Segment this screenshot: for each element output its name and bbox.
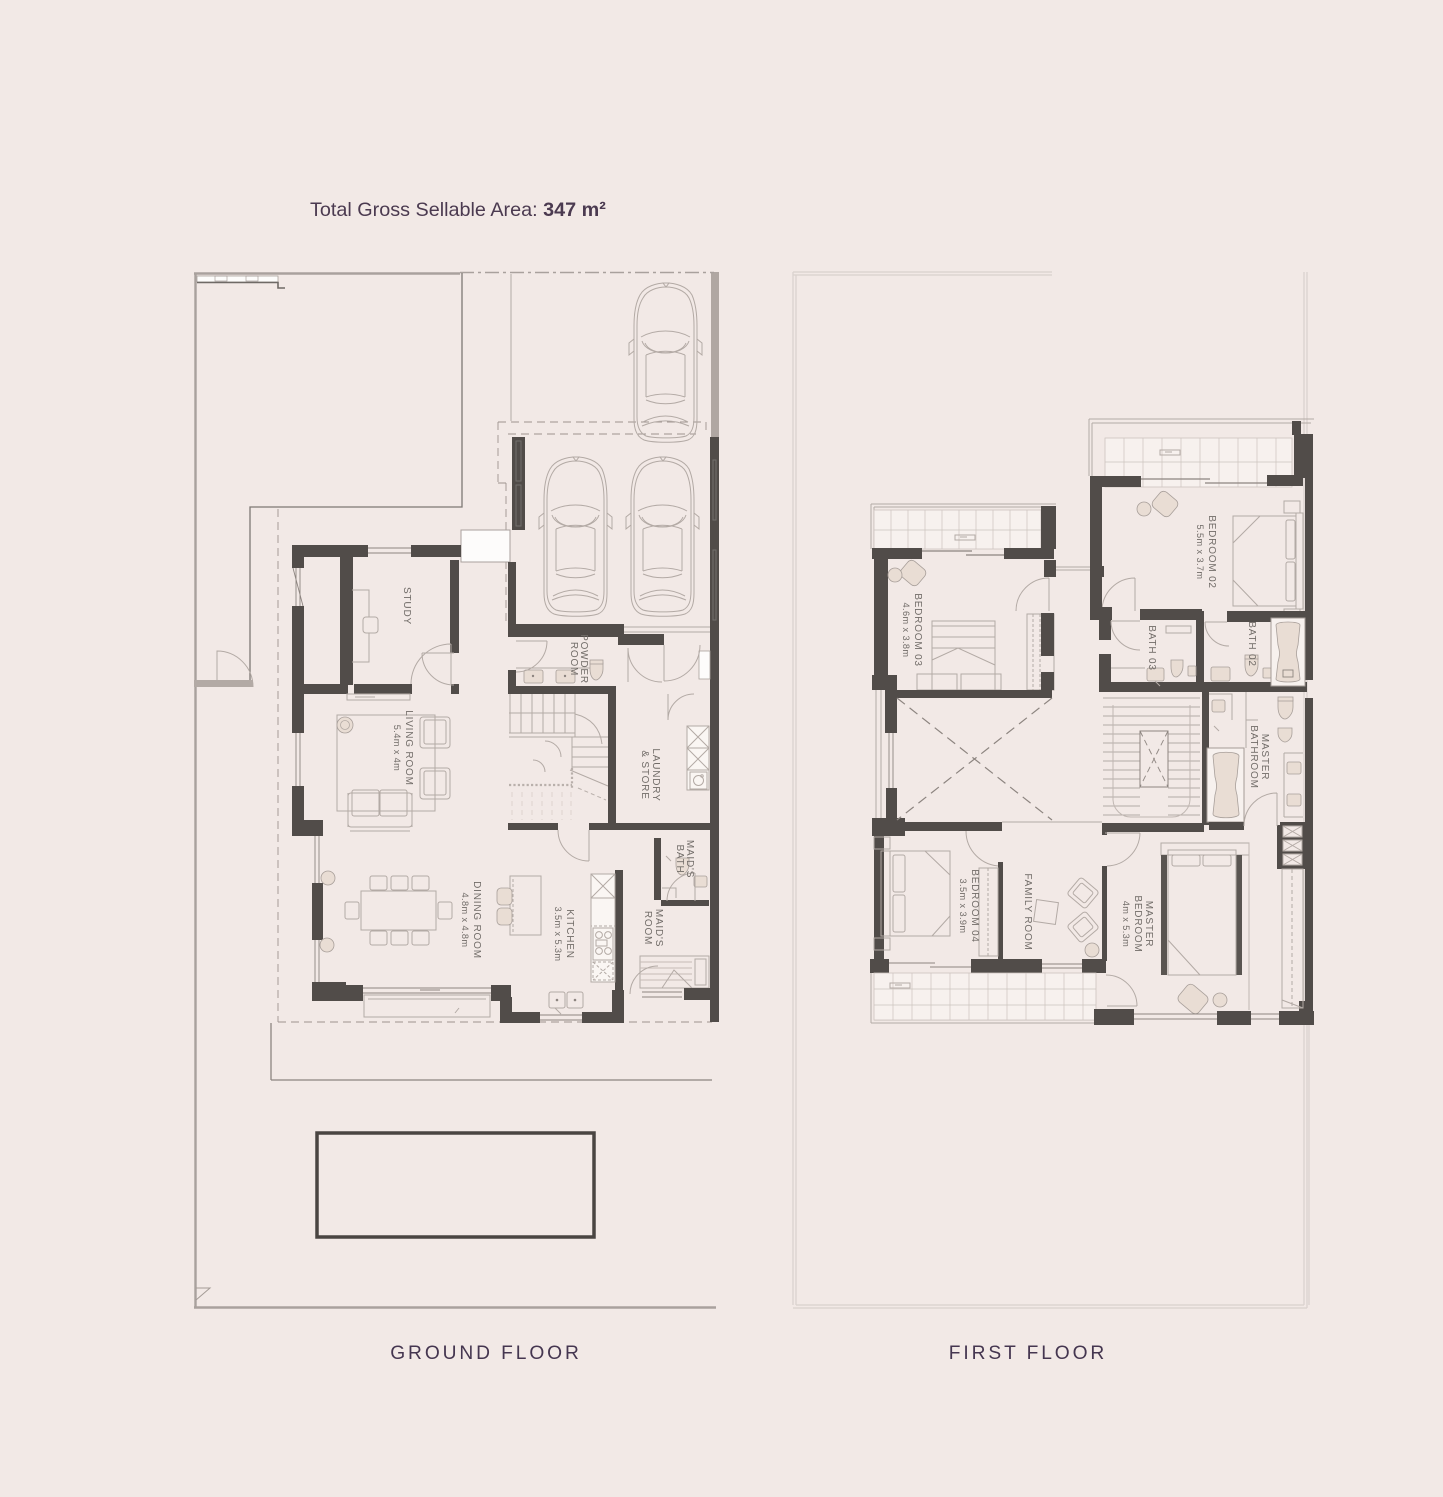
svg-text:GROUND FLOOR: GROUND FLOOR bbox=[390, 1343, 582, 1364]
svg-text:FAMILY ROOM: FAMILY ROOM bbox=[1022, 873, 1033, 950]
svg-text:FIRST FLOOR: FIRST FLOOR bbox=[949, 1343, 1107, 1364]
svg-text:BATH 02: BATH 02 bbox=[1246, 621, 1257, 666]
svg-text:MASTERBEDROOM4m x 5.3m: MASTERBEDROOM4m x 5.3m bbox=[1121, 895, 1154, 952]
svg-text:MASTERBATHROOM: MASTERBATHROOM bbox=[1248, 725, 1270, 788]
svg-text:BATH 03: BATH 03 bbox=[1146, 625, 1157, 670]
svg-text:Total Gross Sellable Area: 347: Total Gross Sellable Area: 347 m² bbox=[310, 199, 606, 221]
svg-text:LAUNDRY& STORE: LAUNDRY& STORE bbox=[639, 748, 661, 801]
svg-text:MAID'SROOM: MAID'SROOM bbox=[642, 909, 664, 947]
svg-text:MAID'SBATH: MAID'SBATH bbox=[674, 840, 695, 878]
svg-text:STUDY: STUDY bbox=[401, 587, 412, 625]
